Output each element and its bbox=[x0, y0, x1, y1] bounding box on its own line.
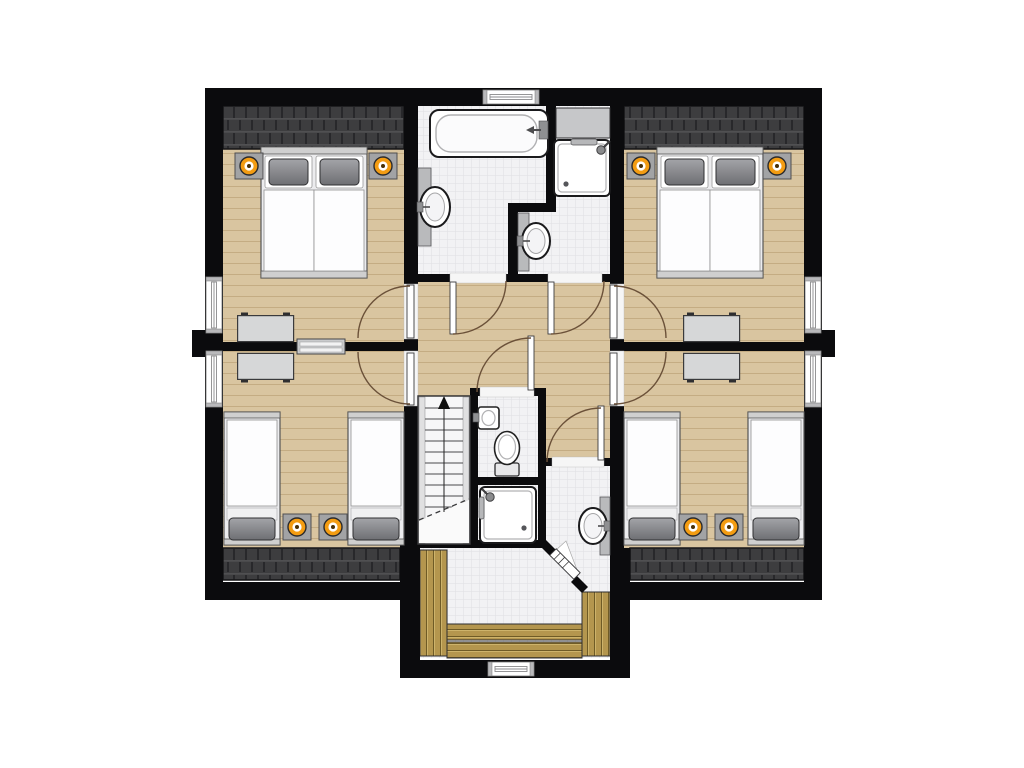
nightstand-lamp bbox=[319, 514, 347, 540]
tap-icon bbox=[604, 521, 610, 531]
nightstand-lamp bbox=[369, 153, 397, 179]
bathtub bbox=[430, 110, 548, 157]
desk-top-left bbox=[238, 313, 294, 342]
roof-hatch-top-left bbox=[223, 106, 404, 149]
shower-rail bbox=[479, 497, 484, 519]
window-right-upper bbox=[805, 277, 821, 333]
window-right-lower bbox=[805, 351, 821, 407]
nightstand-lamp bbox=[679, 514, 707, 540]
single-bed-br-1 bbox=[624, 412, 680, 545]
roof-hatch-top-right bbox=[624, 106, 804, 149]
desk-bottom-right bbox=[684, 353, 740, 382]
storage-block bbox=[556, 108, 610, 138]
pier-right bbox=[822, 330, 835, 357]
window-left-lower bbox=[206, 351, 222, 407]
deck-bench-right bbox=[582, 592, 610, 656]
window-top-bathroom bbox=[483, 90, 539, 104]
tap-icon bbox=[417, 202, 423, 212]
pier-left bbox=[192, 330, 205, 357]
deck-step-1 bbox=[447, 624, 582, 640]
tap-icon bbox=[473, 413, 479, 422]
toilet bbox=[495, 432, 520, 477]
deck-bench-left bbox=[420, 550, 447, 656]
shower-bottom bbox=[479, 487, 536, 543]
double-bed-top-left bbox=[261, 147, 367, 278]
desk-bottom-left bbox=[238, 353, 294, 382]
roof-hatch-bottom-left bbox=[223, 548, 400, 580]
nightstand-lamp bbox=[715, 514, 743, 540]
window-left-upper bbox=[206, 277, 222, 333]
tap-icon bbox=[517, 236, 523, 246]
desk-top-right bbox=[684, 313, 740, 342]
floor-plan-page bbox=[0, 0, 1024, 768]
double-bed-top-right bbox=[657, 147, 763, 278]
divider-wall-right bbox=[624, 342, 804, 351]
nightstand-lamp bbox=[235, 153, 263, 179]
shower-top bbox=[554, 139, 610, 196]
nightstand-lamp bbox=[763, 153, 791, 179]
nightstand-lamp bbox=[627, 153, 655, 179]
nightstand-lamp bbox=[283, 514, 311, 540]
window-balcony bbox=[488, 662, 534, 676]
staircase bbox=[418, 396, 470, 544]
deck-step-2 bbox=[447, 642, 582, 658]
side-table-bar bbox=[297, 339, 345, 354]
single-bed-bl-1 bbox=[224, 412, 280, 545]
single-bed-bl-2 bbox=[348, 412, 404, 545]
roof-hatch-bottom-right bbox=[630, 548, 804, 580]
floor-plan-drawing bbox=[0, 0, 1024, 768]
shower-handle-bar bbox=[571, 139, 597, 145]
single-bed-br-2 bbox=[748, 412, 804, 545]
